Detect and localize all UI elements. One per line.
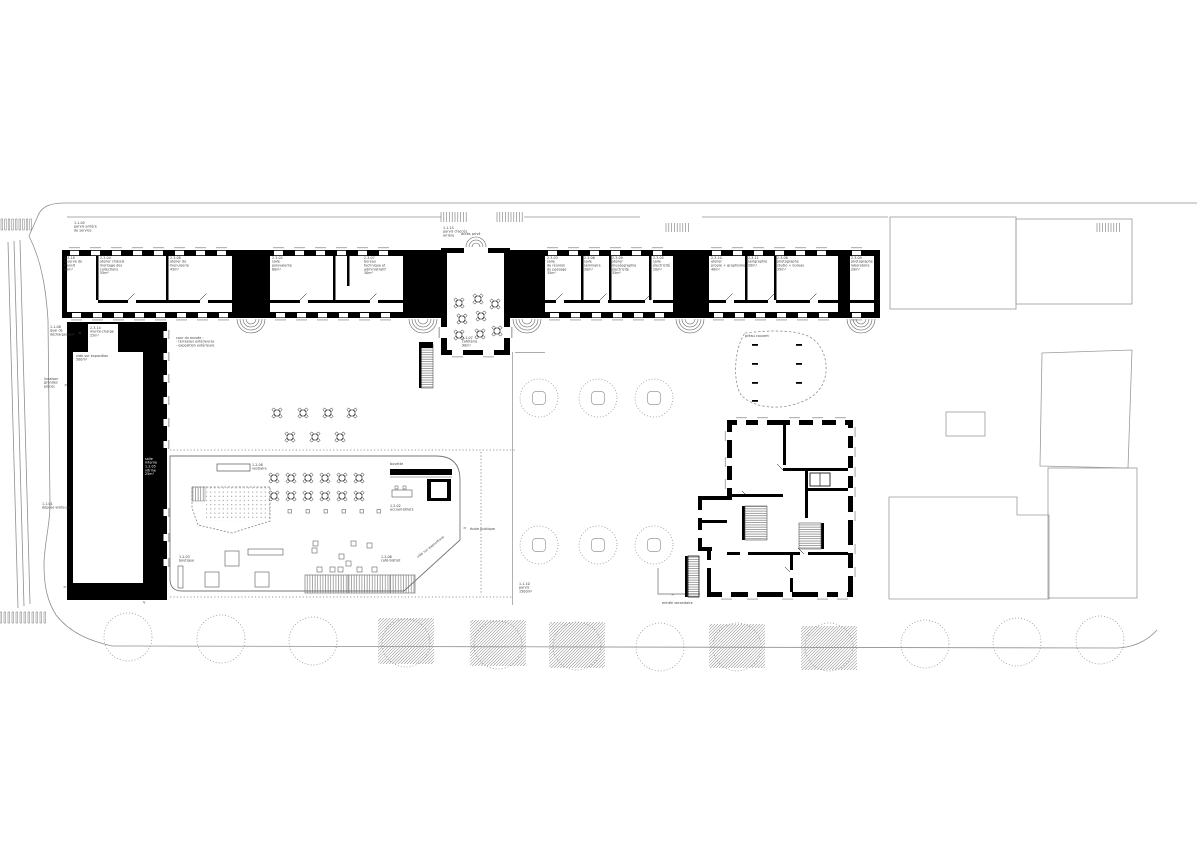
label-entree-secondaire: entrée secondaire [662,601,693,605]
table-icon [354,491,364,501]
planter-icon [592,392,605,405]
label-galerie: salle interne 1.2.05 vitrine 25m² [145,457,157,476]
table-icon [269,491,279,501]
street-trees [104,613,1124,671]
tree-icon [104,613,152,661]
label-cafeteria: 2.1.07 cafétéria 90m² [462,336,477,348]
tree-icon [579,379,617,417]
arrow-down-icon: v [143,600,145,605]
cafe-pavilion [170,456,460,593]
planter-icon [592,539,605,552]
planter-icon [533,392,546,405]
plan-linework [0,0,1200,847]
tree-icon [520,526,558,564]
label-parvis: 1.1.10 parvis 1500m² [519,582,532,594]
counter [217,464,250,471]
courtyard-trees [520,379,673,564]
tree-icon [635,379,673,417]
table-icon [269,473,279,483]
label-vestiaire: 1.2.08 vestiaire [252,463,267,471]
stool-icon [306,510,310,514]
preau-couvert [736,331,827,407]
room-label: 2.3.18 réserve de transit 30m² [64,256,82,272]
plinth-icon [330,567,335,572]
label-buvette: buvette [390,462,403,466]
room-label: 2.3.08 atelier de menuiserie 45m² [170,256,189,272]
arrow-left-icon: < [63,585,67,590]
villa-stairs [745,506,821,549]
plinth-icon [312,548,317,553]
tree-icon [520,379,558,417]
table-icon [272,408,282,418]
room-label: 2.3.03 salle de réunion du passage 35m² [547,256,566,275]
tree-icon [289,617,337,665]
planter-icon [533,539,546,552]
plinth-icon [351,541,356,546]
label-vide-expo: vide sur exposition 500m² [76,354,108,362]
floor-plan: 1.1.05 parvis arrière de service 1.1.14 … [0,0,1200,847]
paving-hatch [332,618,900,670]
label-quai: 1.1.08 quai de déchargement [50,325,75,337]
table-icon [286,473,296,483]
arrow-up-icon: ^ [671,594,675,599]
tree-icon [579,526,617,564]
tree-icon [635,526,673,564]
bar-counter [390,469,452,501]
plinth-icon [357,567,362,572]
stool-icon [360,510,364,514]
room-label: 2.3.07 bureau technique et administratif… [364,256,386,275]
room-label: 2.3.02 salle polyvalente 60m² [272,256,292,272]
table-icon [303,491,313,501]
deck-steps [305,575,415,593]
room-label: 2.3.09 atelier muséographie électricité … [612,256,636,275]
room-label: 2.3.04 atelier châssis montage des colle… [100,256,124,275]
stool-icon [288,510,292,514]
gradins [192,487,270,533]
table-icon [286,491,296,501]
table-icon [310,432,320,442]
table-icon [303,473,313,483]
plinth-icon [317,567,322,572]
tree-icon [197,615,245,663]
villa [685,417,856,600]
stair-core [403,250,443,318]
label-acces-prive: accès privé [461,232,480,236]
label-cafe-bistrot: 1.2.06 café-bistrot [381,555,401,563]
plinth-icon [346,561,351,566]
table-icon [354,473,364,483]
plinth-icon [339,554,344,559]
label-depose: 1.1.01 dépose-visiteurs [42,502,70,510]
planter-icon [648,392,661,405]
stool-icon [324,510,328,514]
label-monte-charge: 2.3.14 monte-charge 25m² [90,326,114,338]
plinth-icon [367,543,372,548]
label-ecole: école publique [470,527,495,531]
stool-icon [377,510,381,514]
label-preau: préau couvert [745,334,769,338]
stools [288,510,381,514]
stair-core [673,250,709,318]
label-livraison: livraison grandes pièces [44,377,58,389]
exterior-stair [419,342,433,388]
table-icon [347,408,357,418]
room-label: 2.3.05 salle électricité 20m² [653,256,670,272]
table-icon [337,491,347,501]
stair-core [232,250,270,318]
label-accueil: 1.2.02 accueil-billets [390,504,414,512]
arrow-right-icon: > [78,331,82,336]
tree-icon [993,618,1041,666]
label-parvis-arriere: 1.1.05 parvis arrière de service [74,221,97,233]
room-label: 2.3.06 salle séminaire 20m² [584,256,601,272]
table-icon [320,491,330,501]
room-label: 2.3.11 sérigraphie 20m² [748,256,767,268]
planter-icon [648,539,661,552]
hatch-combs [441,212,1119,232]
table-icon [335,432,345,442]
plinth-icon [338,567,343,572]
stair-core [510,250,545,318]
plinth-icon [313,541,318,546]
tree-icon [1076,616,1124,664]
arrow-left-icon: < [463,526,467,531]
display-plinths [312,541,377,572]
villa-windows [698,417,856,600]
table-icon [320,473,330,483]
entrance-opening [464,248,488,253]
arrow-right-icon: > [64,383,68,388]
villa-exterior-stair [685,556,699,597]
preau-bench-marks [752,344,802,402]
tree-icon [901,620,949,668]
neighbour-parcels [889,217,1137,599]
room-label: 2.3.10 atelier propre + graphisme 40m² [711,256,745,272]
table-icon [323,408,333,418]
cafe-tables [269,473,364,501]
table-icon [298,408,308,418]
table-icon [337,473,347,483]
stool-icon [342,510,346,514]
label-boutique: 1.2.03 boutique [179,555,194,563]
plinth-icon [372,567,377,572]
room-label: 2.3.09 photographe laboratoire 20m² [851,256,873,272]
stair-core [838,250,850,318]
table-icon [285,432,295,442]
room-label: 2.3.08 photographe studio + bureau 35m² [777,256,804,272]
label-cour: cour du musée : - terrasses extérieures … [176,336,215,348]
terrace-tables [272,408,357,442]
